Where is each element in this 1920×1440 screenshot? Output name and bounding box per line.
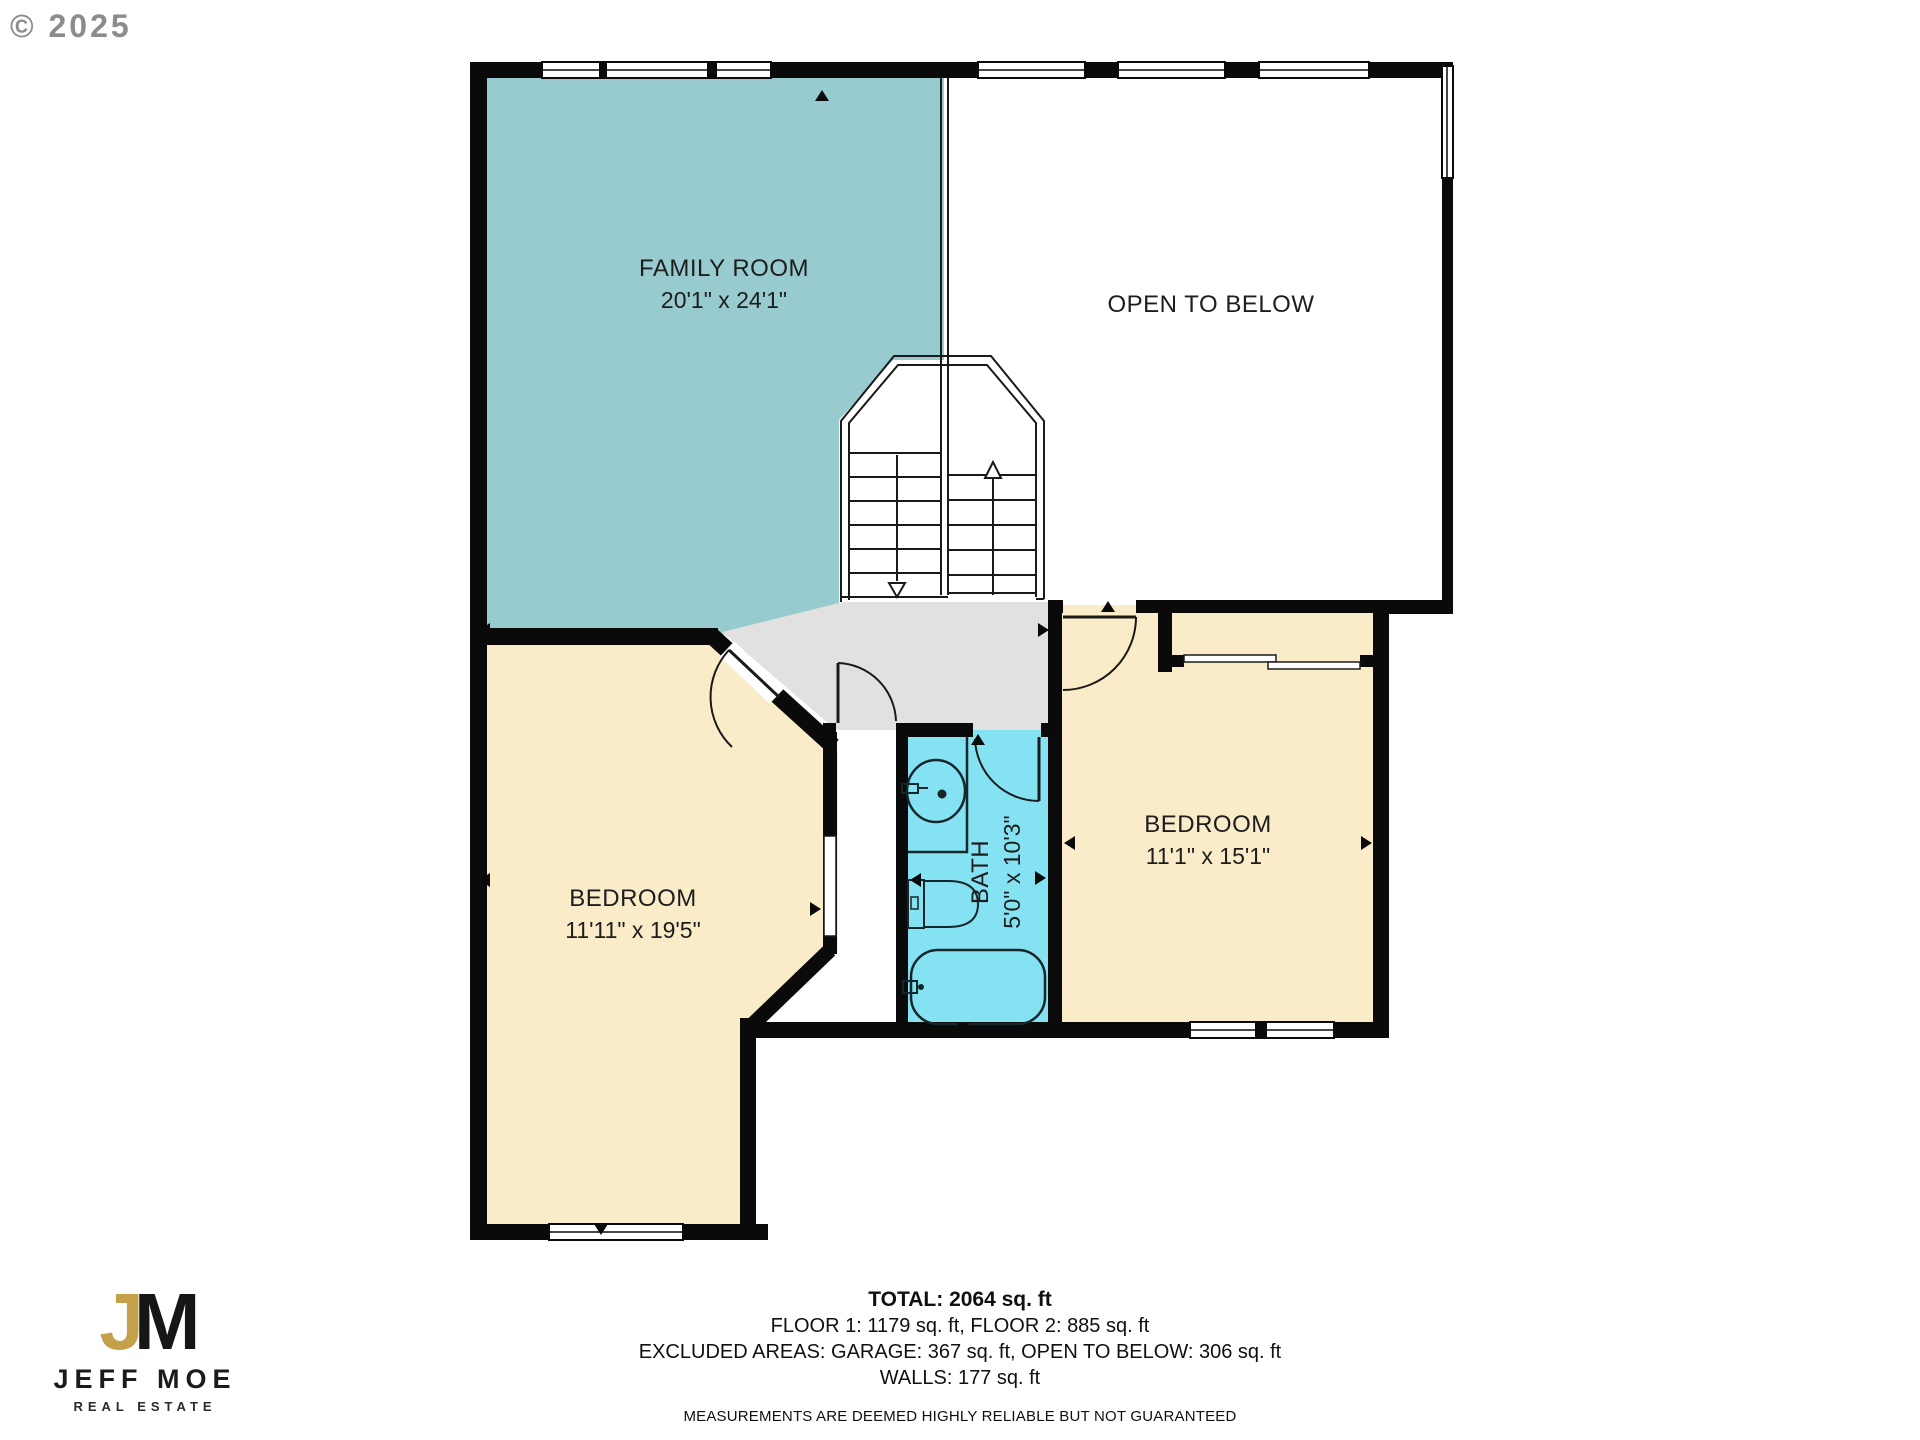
disclaimer-text: MEASUREMENTS ARE DEEMED HIGHLY RELIABLE … xyxy=(0,1408,1920,1425)
wall-hall-bottom-c xyxy=(1041,723,1062,737)
wall-bedroom-left-right xyxy=(740,1018,756,1240)
floor-plan-page: © 2025 xyxy=(0,0,1920,1440)
open-to-below-label: OPEN TO BELOW xyxy=(1108,291,1315,318)
stairs-up-arrow-icon xyxy=(985,462,1001,478)
window-mullion xyxy=(599,62,607,78)
logo-monogram-j: J xyxy=(99,1277,134,1366)
bath-label: BATH xyxy=(967,840,994,904)
wall-closet-bottom-b xyxy=(1360,655,1380,667)
logo-monogram-icon: JM xyxy=(30,1282,260,1362)
sink-drain-icon xyxy=(938,790,947,799)
bedroom-right-label: BEDROOM xyxy=(1144,811,1272,838)
wall-bedroom-right-right xyxy=(1373,606,1389,1038)
stairs-left-treads xyxy=(841,453,948,597)
total-area-text: TOTAL: 2064 sq. ft xyxy=(0,1288,1920,1312)
window-mullion xyxy=(707,62,717,78)
wall-closet-bottom-a xyxy=(1158,655,1184,667)
wall-left xyxy=(470,62,487,1240)
stairs-outer-outline xyxy=(841,356,1044,602)
pocket-door-inset xyxy=(824,836,836,936)
excluded-area-text: EXCLUDED AREAS: GARAGE: 367 sq. ft, OPEN… xyxy=(0,1341,1920,1364)
sliding-door-panel xyxy=(1268,662,1360,669)
bedroom-right-dims: 11'1" x 15'1" xyxy=(1146,843,1270,869)
copyright-notice: © 2025 xyxy=(10,8,132,45)
area-summary: TOTAL: 2064 sq. ft FLOOR 1: 1179 sq. ft,… xyxy=(0,1288,1920,1425)
logo-monogram-m: M xyxy=(134,1277,191,1366)
floor-plan-canvas: FAMILY ROOM 20'1" x 24'1" OPEN TO BELOW … xyxy=(0,0,1920,1440)
wall-hall-bottom-b xyxy=(896,723,973,737)
bedroom-left-dims: 11'11" x 19'5" xyxy=(565,917,701,943)
walls-area-text: WALLS: 177 sq. ft xyxy=(0,1367,1920,1390)
wall-bedroom-right-top-a xyxy=(1048,600,1063,613)
realtor-tagline: REAL ESTATE xyxy=(30,1400,260,1413)
family-room-dims: 20'1" x 24'1" xyxy=(661,287,787,313)
wall-bath-right xyxy=(1048,600,1062,1038)
stairs-right-treads xyxy=(948,475,1044,599)
wall-bedroom-left-top xyxy=(470,628,718,645)
wall-bedroom-right-top-b xyxy=(1136,600,1380,613)
family-room-area xyxy=(478,70,944,636)
stairs-down-arrow-icon xyxy=(889,583,905,597)
sliding-door-panel xyxy=(1184,655,1276,662)
tub-faucet-knob-icon xyxy=(918,984,924,990)
realtor-logo: JM JEFF MOE REAL ESTATE xyxy=(30,1282,260,1413)
wall-step-right xyxy=(1373,600,1453,614)
floors-area-text: FLOOR 1: 1179 sq. ft, FLOOR 2: 885 sq. f… xyxy=(0,1315,1920,1338)
realtor-name: JEFF MOE xyxy=(30,1366,260,1393)
stairs-inner-outline xyxy=(849,365,1036,600)
window-mullion xyxy=(1255,1022,1267,1038)
bedroom-left-label: BEDROOM xyxy=(569,885,697,912)
room-fills xyxy=(478,70,1382,1232)
bath-dims: 5'0" x 10'3" xyxy=(999,815,1025,928)
family-room-label: FAMILY ROOM xyxy=(639,255,809,282)
